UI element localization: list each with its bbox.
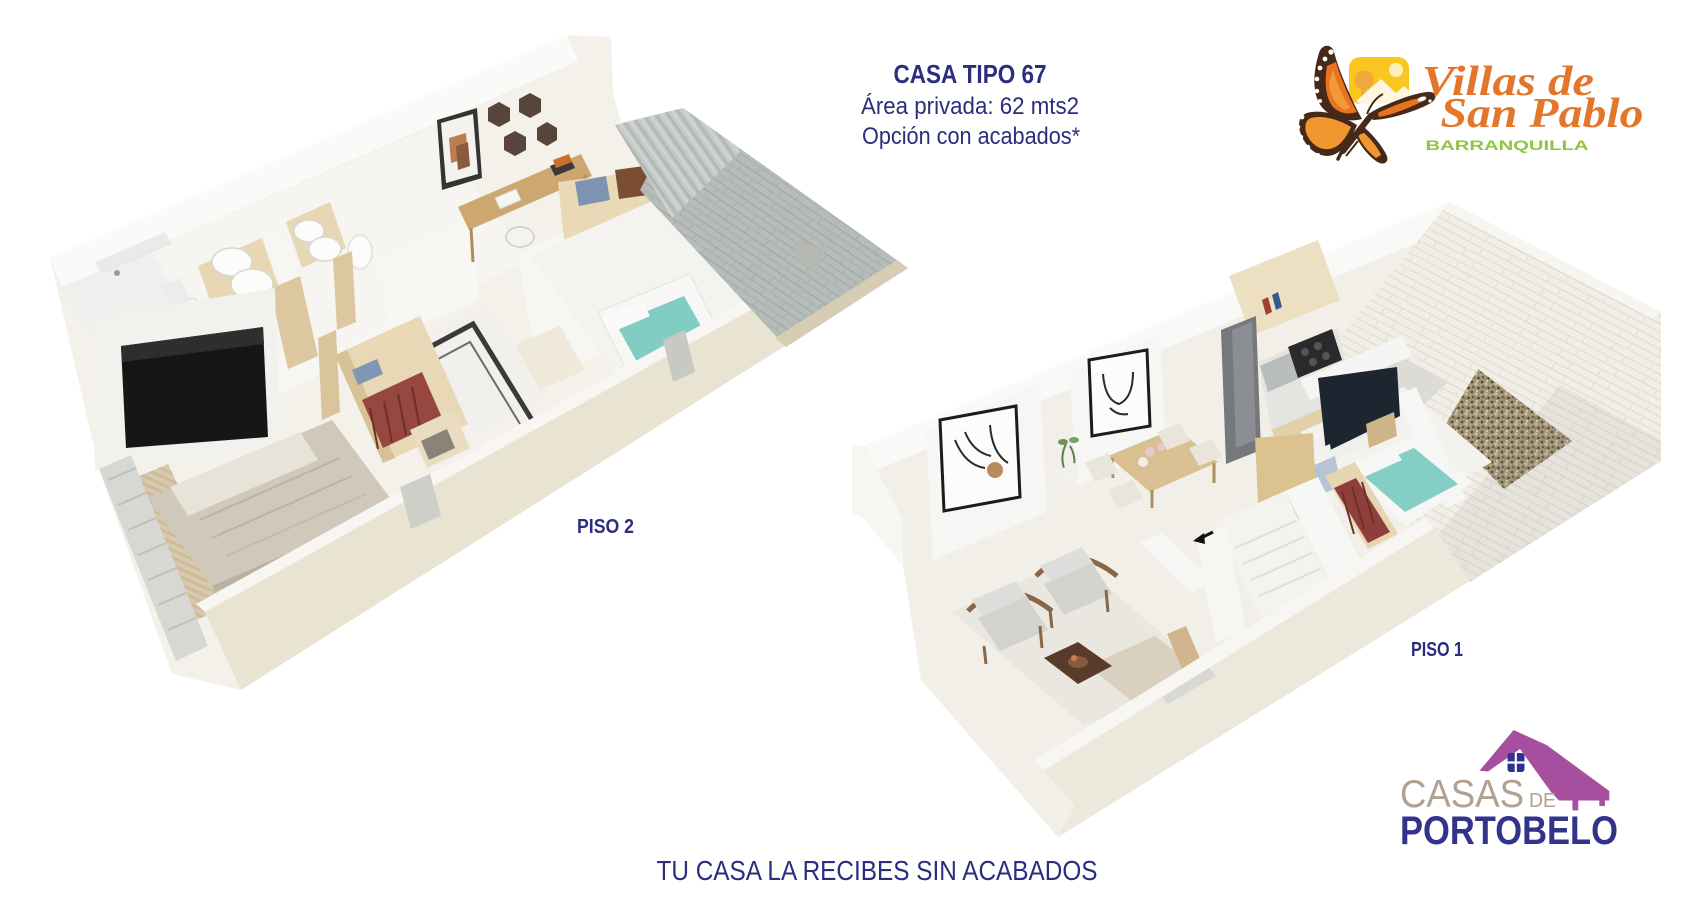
svg-text:Área privada: 62 mts2: Área privada: 62 mts2	[861, 93, 1079, 120]
svg-text:PISO 1: PISO 1	[1411, 639, 1463, 661]
svg-text:CASA TIPO 67: CASA TIPO 67	[894, 59, 1047, 89]
svg-text:BARRANQUILLA: BARRANQUILLA	[1426, 137, 1589, 153]
svg-text:PORTOBELO: PORTOBELO	[1400, 809, 1618, 853]
svg-text:PISO 2: PISO 2	[577, 516, 634, 538]
svg-text:Opción con acabados*: Opción con acabados*	[862, 123, 1080, 150]
svg-text:San Pablo: San Pablo	[1441, 91, 1644, 137]
svg-text:TU CASA LA RECIBES SIN ACABADO: TU CASA LA RECIBES SIN ACABADOS	[657, 855, 1098, 886]
